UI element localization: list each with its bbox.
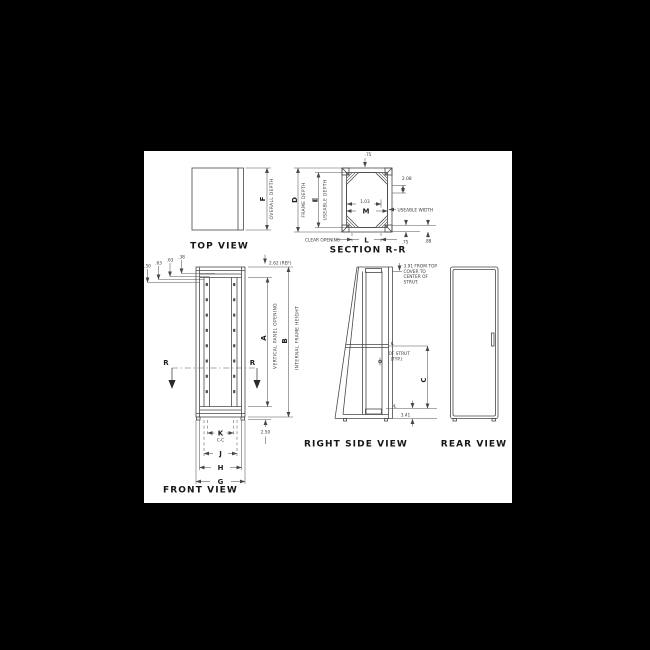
section-rr-title: SECTION R-R	[330, 246, 407, 256]
note-line-4: STRUT.	[404, 279, 419, 285]
dim-label-useable-width: USEABLE WIDTH	[398, 207, 434, 213]
offset-dim-50: .50	[144, 264, 151, 270]
dim-letter-l: L	[364, 236, 369, 244]
note-line-2: COVER TO	[404, 269, 427, 275]
strut-note-line-2: (TYP.)	[391, 357, 403, 363]
dim-letter-a: A	[260, 335, 268, 341]
dim-value-250: 2.50	[261, 430, 271, 436]
note-line-1: 3.91 FROM TOP	[404, 264, 438, 270]
cut-letter-r-left: R	[163, 359, 169, 367]
right-side-view-title: RIGHT SIDE VIEW	[304, 440, 408, 450]
dim-letter-f: F	[259, 196, 267, 201]
front-view-title: FRONT VIEW	[163, 486, 238, 496]
dim-letter-d: D	[291, 197, 299, 203]
dim-letter-k: K	[218, 430, 224, 438]
dim-letter-j: J	[218, 450, 222, 458]
offset-dim-63a: .63	[155, 261, 162, 267]
cut-letter-r-right: R	[250, 359, 256, 367]
dim-value-flange-88: .88	[425, 239, 432, 245]
dim-label-vertical-panel-opening: VERTICAL PANEL OPENING	[273, 303, 279, 369]
offset-dim-38: .38	[178, 255, 185, 261]
dim-letter-e: E	[312, 197, 320, 202]
rear-view-title: REAR VIEW	[441, 440, 507, 450]
dim-label-clear-opening: CLEAR OPENING	[305, 237, 340, 243]
dim-value-mid: 1.03	[360, 199, 370, 205]
dim-label-internal-frame-height: INTERNAL FRAME HEIGHT	[295, 306, 301, 370]
dim-value-top-75: .75	[365, 152, 372, 158]
dim-letter-h: H	[218, 464, 224, 472]
centerline-symbol-bottom: ℄	[394, 403, 397, 409]
strut-note-line-1: OF STRUT	[389, 351, 411, 357]
top-view-title: TOP VIEW	[190, 242, 249, 252]
dim-letter-m: M	[363, 208, 370, 216]
technical-drawing: F OVERALL DEPTH TOP VIEW	[0, 0, 650, 650]
dim-value-341: 3.41	[401, 412, 411, 418]
dim-label-frame-depth: FRAME DEPTH	[301, 182, 307, 217]
dim-label-c-c: C-C	[217, 438, 225, 444]
ref-dim-top: 2.62 (REF)	[269, 261, 292, 267]
dim-letter-c: C	[420, 377, 428, 382]
dim-value-gusset: 2.08	[402, 176, 412, 182]
centerline-symbol-mid: ℄	[391, 341, 394, 347]
note-line-3: CENTER OF	[404, 274, 429, 280]
offset-dim-63b: .63	[167, 258, 174, 264]
dim-label-overall-depth: OVERALL DEPTH	[269, 179, 275, 220]
drawing-stage: F OVERALL DEPTH TOP VIEW	[0, 0, 650, 650]
dim-letter-b: B	[281, 338, 289, 343]
dim-label-useable-depth: USEABLE DEPTH	[323, 180, 329, 221]
